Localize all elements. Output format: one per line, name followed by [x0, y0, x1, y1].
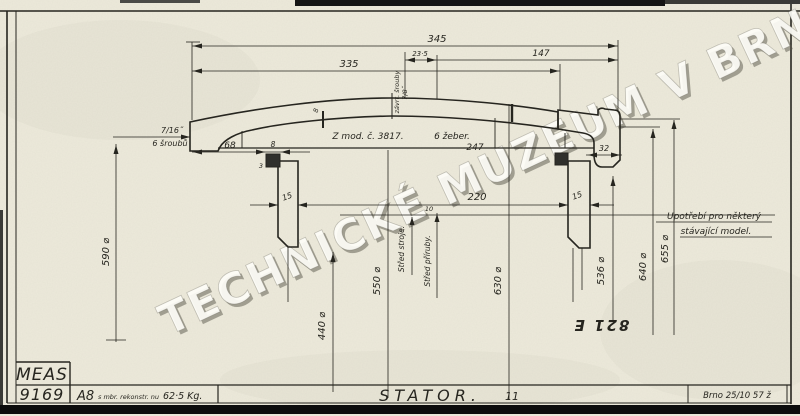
dim-147: 147 [532, 49, 549, 59]
dim-220: 220 [467, 192, 486, 203]
dia-440: 440 ⌀ [317, 311, 328, 340]
pattern-note: s mbr. rekonstr. nu [98, 393, 159, 401]
bolt-count-label: 6 šroubů [152, 138, 187, 148]
apex-note-2: 7/8˝ [400, 85, 409, 99]
stator-blueprint: TECHNICKÉ MUZEUM V BRNĚ TECHNICKÉ MUZEUM… [0, 0, 800, 416]
note-line-1: Upotřebí pro některý [667, 211, 762, 222]
pattern-weight: 62·5 Kg. [163, 391, 202, 402]
dia-536: 536 ⌀ [596, 256, 607, 285]
dim-68: 68 [224, 141, 236, 151]
note-line-2: stávající model. [681, 227, 752, 237]
bolt-spec-label: 7/16˝ [161, 125, 184, 135]
drawing-title: STATOR. [379, 386, 481, 405]
apex-note-1: závrt. šrouby [393, 70, 401, 114]
sheet-number: 11 [505, 390, 519, 403]
scan-edge-left [0, 210, 3, 405]
dim-335: 335 [339, 59, 358, 70]
dim-247: 247 [466, 143, 483, 153]
left-bolt [266, 154, 280, 167]
center-flange-label: Střed příruby. [423, 235, 432, 286]
dim-8: 8 [271, 140, 276, 149]
model-ref-label: Z mod. č. 3817. [331, 131, 403, 142]
title-block-org: MEAS [16, 365, 68, 385]
scan-edge-bottom [0, 405, 800, 414]
dim-10: 10 [425, 205, 433, 213]
dia-550: 550 ⌀ [372, 266, 383, 295]
ribs-label: 6 žeber. [434, 132, 470, 142]
dia-630: 630 ⌀ [493, 266, 504, 295]
scan-edge-top [295, 0, 665, 6]
drawing-number: 9169 [20, 385, 65, 404]
dia-590: 590 ⌀ [101, 237, 112, 266]
center-machine-label: Střed stroje. [397, 226, 406, 272]
scanned-blueprint-page: TECHNICKÉ MUZEUM V BRNĚ TECHNICKÉ MUZEUM… [0, 0, 800, 416]
dia-655: 655 ⌀ [660, 234, 671, 263]
dim-23-5: 23·5 [412, 50, 428, 58]
pattern-code: A8 [76, 389, 94, 404]
dim-32: 32 [599, 144, 609, 153]
place-date: Brno 25/10 57 ž [703, 391, 771, 401]
right-bolt [555, 153, 568, 165]
dia-640: 640 ⌀ [638, 252, 649, 281]
dim-3: 3 [259, 162, 263, 170]
museum-stamp: 821 E [573, 316, 630, 334]
dim-345: 345 [427, 34, 446, 45]
